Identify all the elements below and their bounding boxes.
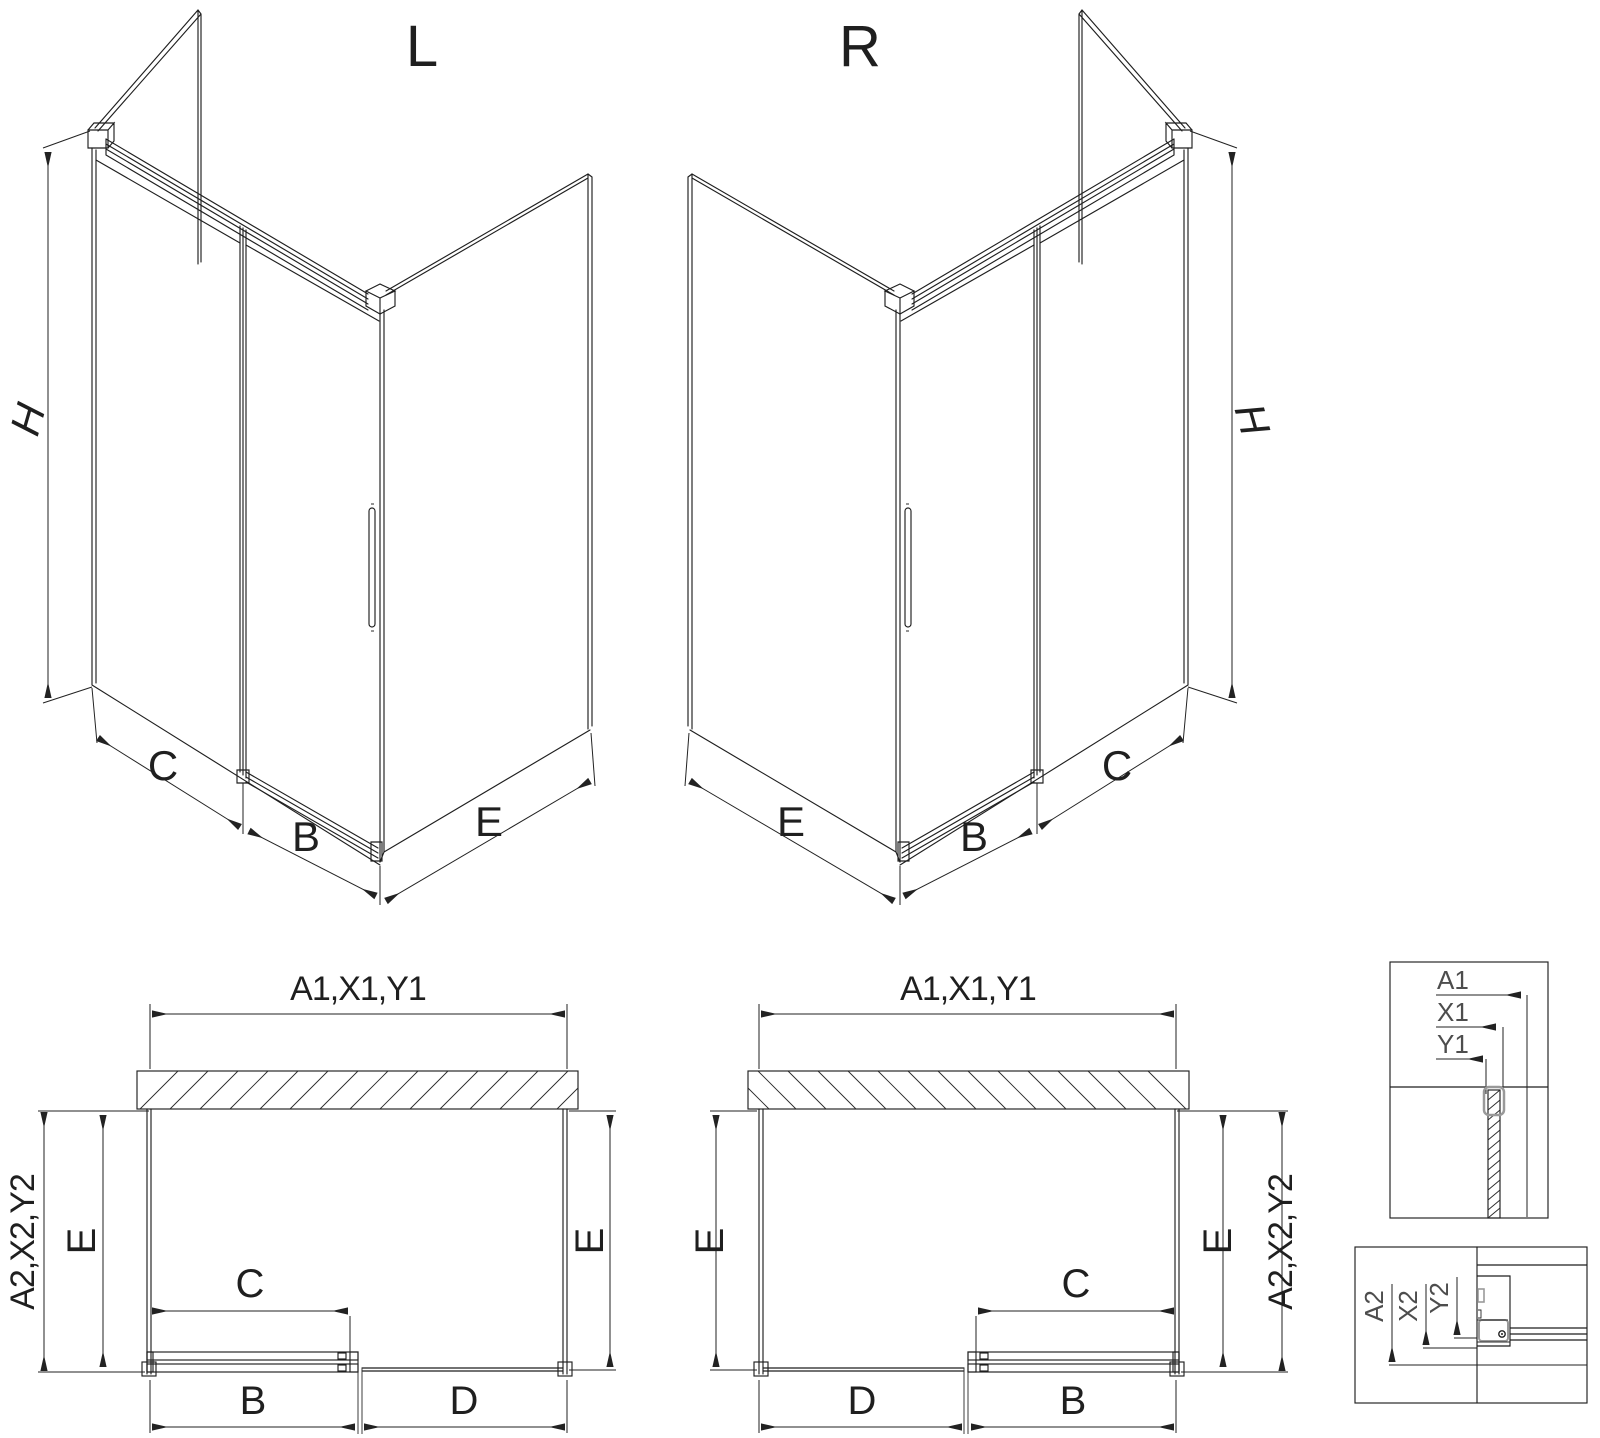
plan-left-door-label: B <box>240 1379 267 1423</box>
plan-right-door-label: B <box>1060 1379 1087 1423</box>
detail-top-label-x1: X1 <box>1437 997 1469 1027</box>
dim-label-height-right: H <box>1226 398 1280 441</box>
technical-drawing-page: L H C B E R H C B E A1,X1,Y1 A2,X2,Y2 E … <box>0 0 1600 1438</box>
dim-label-fixed-right: C <box>1102 742 1132 789</box>
detail-top-label-a1: A1 <box>1437 965 1469 995</box>
dim-label-side-left: E <box>475 798 503 845</box>
plan-view-left: A1,X1,Y1 A2,X2,Y2 E E C B D <box>4 970 616 1434</box>
plan-right-width-label: A1,X1,Y1 <box>900 970 1036 1008</box>
profile-tab-icon <box>1478 1289 1484 1302</box>
plan-left-fixed-label: D <box>450 1379 479 1423</box>
plan-left-side-right-label: E <box>568 1228 612 1255</box>
glass-clamp-icon <box>1484 1087 1504 1115</box>
dim-label-fixed-left: C <box>148 742 178 789</box>
iso-view-right: R H C B E <box>685 10 1279 905</box>
shower-enclosure-drawing: L H C B E R H C B E A1,X1,Y1 A2,X2,Y2 E … <box>0 0 1600 1438</box>
iso-right-geometry <box>685 10 1237 905</box>
detail-bottom-label-y2: Y2 <box>1424 1282 1454 1314</box>
dim-label-height-left: H <box>1 398 55 441</box>
plan-right-depth-label: A2,X2,Y2 <box>1262 1174 1300 1310</box>
plan-right-side-left-label: E <box>688 1228 732 1255</box>
plan-right-fixed-label: D <box>848 1379 877 1423</box>
dim-label-side-right: E <box>777 798 805 845</box>
iso-left-geometry <box>43 10 595 905</box>
variant-label-left: L <box>406 14 438 79</box>
plan-left-width-label: A1,X1,Y1 <box>290 970 426 1008</box>
plan-left-geometry <box>38 1004 616 1434</box>
plan-left-depth-label: A2,X2,Y2 <box>4 1174 42 1310</box>
plan-view-right: A1,X1,Y1 A2,X2,Y2 E E C B D <box>688 970 1300 1434</box>
dim-label-door-right: B <box>960 813 988 860</box>
detail-section-bottom: A2 X2 Y2 <box>1355 1247 1587 1403</box>
plan-left-side-left-label: E <box>60 1228 104 1255</box>
plan-right-side-right-label: E <box>1196 1228 1240 1255</box>
detail-section-top: A1 X1 Y1 <box>1390 962 1548 1218</box>
plan-right-clear-label: C <box>1062 1262 1091 1306</box>
variant-label-right: R <box>839 14 881 79</box>
detail-bottom-label-a2: A2 <box>1359 1290 1389 1322</box>
iso-view-left: L H C B E <box>1 10 595 905</box>
detail-top-label-y1: Y1 <box>1437 1029 1469 1059</box>
dim-label-door-left: B <box>292 813 320 860</box>
detail-bottom-label-x2: X2 <box>1393 1290 1423 1322</box>
plan-left-clear-label: C <box>236 1262 265 1306</box>
plan-right-geometry <box>710 1004 1288 1434</box>
screw-center-icon <box>1501 1333 1503 1335</box>
